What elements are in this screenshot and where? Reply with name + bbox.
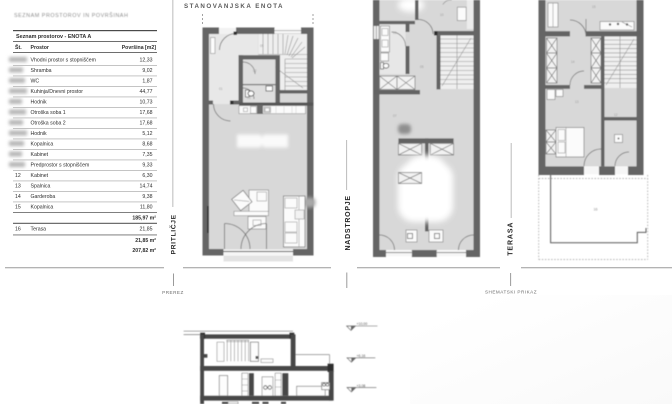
svg-text:14: 14 xyxy=(15,194,21,200)
svg-text:Kopalnica: Kopalnica xyxy=(31,205,54,211)
svg-text:17,68: 17,68 xyxy=(140,121,153,127)
svg-text:9,33: 9,33 xyxy=(142,163,152,169)
svg-text:13: 13 xyxy=(15,184,21,190)
svg-text:Kabinet: Kabinet xyxy=(31,152,49,158)
svg-text:9,02: 9,02 xyxy=(142,68,152,74)
svg-text:Terasa: Terasa xyxy=(31,227,47,233)
svg-text:09: 09 xyxy=(393,31,397,35)
svg-text:44,77: 44,77 xyxy=(140,89,153,95)
svg-text:16: 16 xyxy=(15,227,21,233)
svg-text:21,85 m²: 21,85 m² xyxy=(135,238,156,244)
svg-text:7,35: 7,35 xyxy=(142,152,152,158)
svg-text:17,68: 17,68 xyxy=(140,110,153,116)
svg-text:+6,16: +6,16 xyxy=(357,354,366,358)
svg-text:Kopalnica: Kopalnica xyxy=(31,142,54,148)
svg-text:+3,08: +3,08 xyxy=(357,384,366,388)
svg-text:Otroška soba 2: Otroška soba 2 xyxy=(31,121,66,127)
svg-text:SEZNAM PROSTOROV IN POVRŠINAH: SEZNAM PROSTOROV IN POVRŠINAH xyxy=(14,12,128,19)
svg-text:14: 14 xyxy=(571,60,575,64)
svg-text:14,74: 14,74 xyxy=(140,184,153,190)
svg-text:21,85: 21,85 xyxy=(140,227,153,233)
svg-text:1,87: 1,87 xyxy=(142,79,152,85)
svg-text:12: 12 xyxy=(614,113,618,117)
svg-text:8,68: 8,68 xyxy=(142,142,152,148)
svg-text:10: 10 xyxy=(440,13,444,17)
svg-text:WC: WC xyxy=(31,79,40,85)
svg-text:Površina [m2]: Površina [m2] xyxy=(122,45,157,51)
svg-text:01: 01 xyxy=(219,87,223,91)
svg-text:PRITLIČJE: PRITLIČJE xyxy=(169,214,178,254)
svg-text:05: 05 xyxy=(260,44,264,48)
svg-text:Otroška soba 1: Otroška soba 1 xyxy=(31,110,66,116)
svg-text:Kuhinja/Dnevni prostor: Kuhinja/Dnevni prostor xyxy=(31,89,84,95)
svg-text:10,73: 10,73 xyxy=(140,100,153,106)
svg-text:05: 05 xyxy=(420,65,424,69)
svg-text:Vhodni prostor s stopniščem: Vhodni prostor s stopniščem xyxy=(31,58,96,64)
svg-text:SHEMATSKI PRIKAZ: SHEMATSKI PRIKAZ xyxy=(485,290,537,295)
svg-text:15: 15 xyxy=(592,5,596,9)
svg-text:NADSTROPJE: NADSTROPJE xyxy=(345,195,352,250)
svg-text:13: 13 xyxy=(575,100,579,104)
svg-text:Hodnik: Hodnik xyxy=(31,100,48,106)
svg-text:Seznam prostorov - ENOTA A: Seznam prostorov - ENOTA A xyxy=(16,34,91,40)
svg-text:03: 03 xyxy=(247,96,251,100)
svg-text:Prostor: Prostor xyxy=(31,45,49,51)
svg-text:Shramba: Shramba xyxy=(31,68,52,74)
svg-text:02: 02 xyxy=(253,69,257,73)
svg-text:Spalnica: Spalnica xyxy=(31,184,51,190)
svg-text:12: 12 xyxy=(15,173,21,179)
svg-text:Kabinet: Kabinet xyxy=(31,173,49,179)
svg-text:TERASA: TERASA xyxy=(508,222,515,256)
svg-text:Št.: Št. xyxy=(15,43,22,51)
svg-text:11,80: 11,80 xyxy=(140,205,153,211)
svg-text:07: 07 xyxy=(393,114,397,118)
svg-text:207,82 m²: 207,82 m² xyxy=(132,248,156,254)
svg-text:6,30: 6,30 xyxy=(142,173,152,179)
svg-text:Garderoba: Garderoba xyxy=(31,194,56,200)
svg-text:STANOVANJSKA ENOTA: STANOVANJSKA ENOTA xyxy=(184,3,284,10)
svg-text:Hodnik: Hodnik xyxy=(31,131,48,137)
svg-text:185,97 m²: 185,97 m² xyxy=(132,216,156,222)
svg-text:15: 15 xyxy=(15,205,21,211)
svg-text:16: 16 xyxy=(594,208,598,212)
svg-text:5,12: 5,12 xyxy=(142,131,152,137)
svg-text:9,38: 9,38 xyxy=(142,194,152,200)
svg-text:Predprostor s stopniščem: Predprostor s stopniščem xyxy=(31,163,90,169)
svg-text:PREREZ: PREREZ xyxy=(162,290,184,295)
svg-text:12,33: 12,33 xyxy=(140,58,153,64)
svg-text:+10,00: +10,00 xyxy=(357,322,368,326)
